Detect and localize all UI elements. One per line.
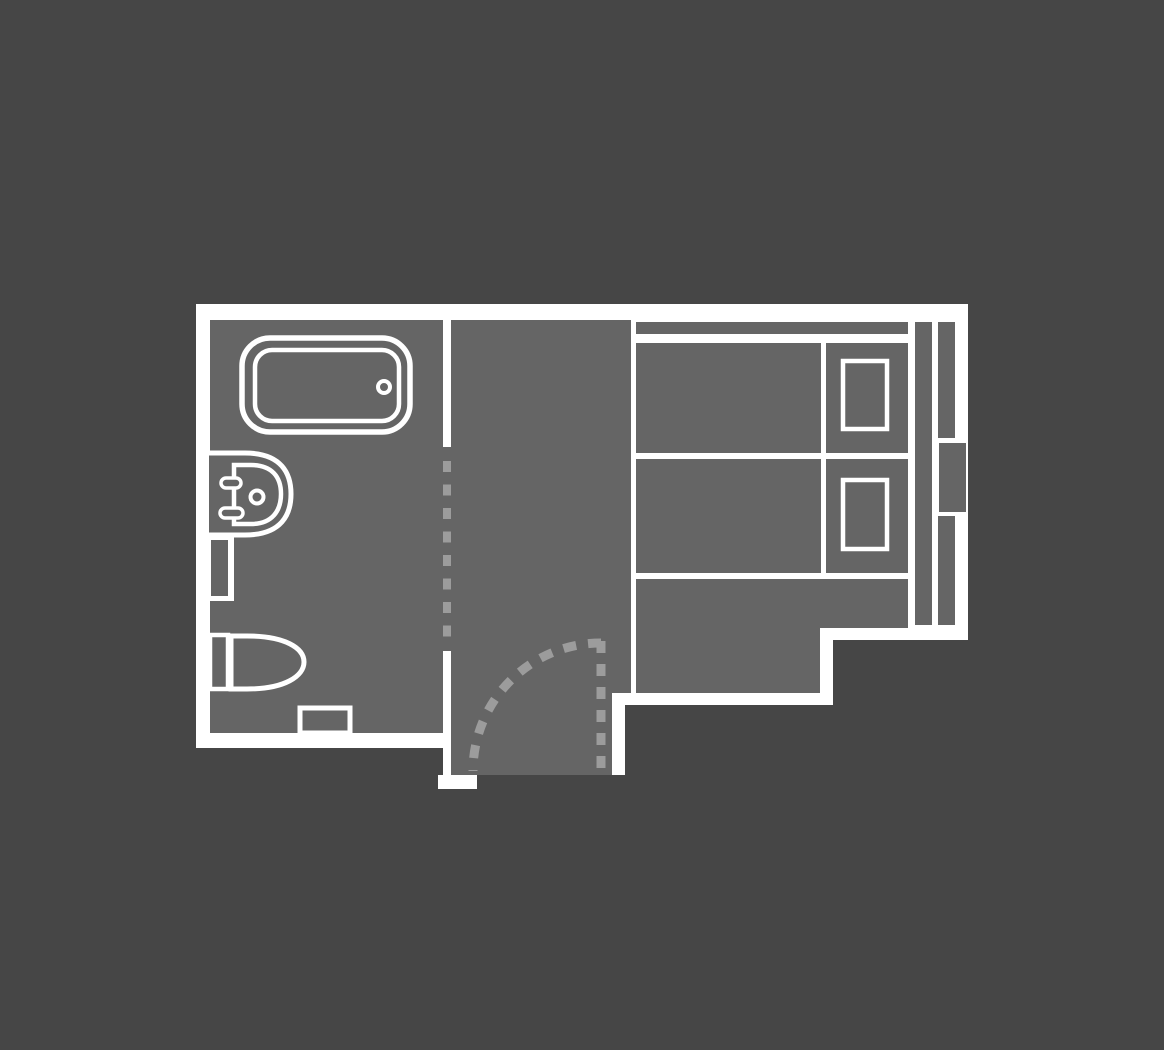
bed-2-pillow	[843, 480, 887, 549]
console-strip	[915, 322, 932, 625]
bed-1	[636, 343, 908, 453]
utility-shaft-inner	[211, 540, 228, 596]
bed-1-mattress	[636, 343, 821, 453]
faucet-handle-top	[221, 478, 241, 488]
bed-1-pillow	[843, 361, 887, 429]
utility-shaft	[203, 533, 234, 601]
bed-2	[636, 459, 908, 573]
bed-2-mattress	[636, 459, 821, 573]
toilet-tank	[210, 635, 228, 689]
toilet-bowl	[231, 636, 304, 689]
bath-mat	[300, 708, 350, 733]
partition-opening-floor	[443, 447, 452, 651]
headboard-shelf	[636, 322, 908, 334]
faucet-handle-bottom	[220, 508, 243, 518]
toilet	[210, 635, 304, 689]
window-strip-upper	[938, 322, 955, 438]
entry-threshold-stub	[438, 775, 477, 789]
floor-plan-canvas	[0, 0, 1164, 1050]
window-strip-lower	[938, 516, 955, 625]
sink	[209, 453, 291, 535]
hallway-floor	[451, 320, 631, 775]
floor-plan-page	[0, 0, 1164, 1050]
window-bay	[939, 443, 966, 512]
